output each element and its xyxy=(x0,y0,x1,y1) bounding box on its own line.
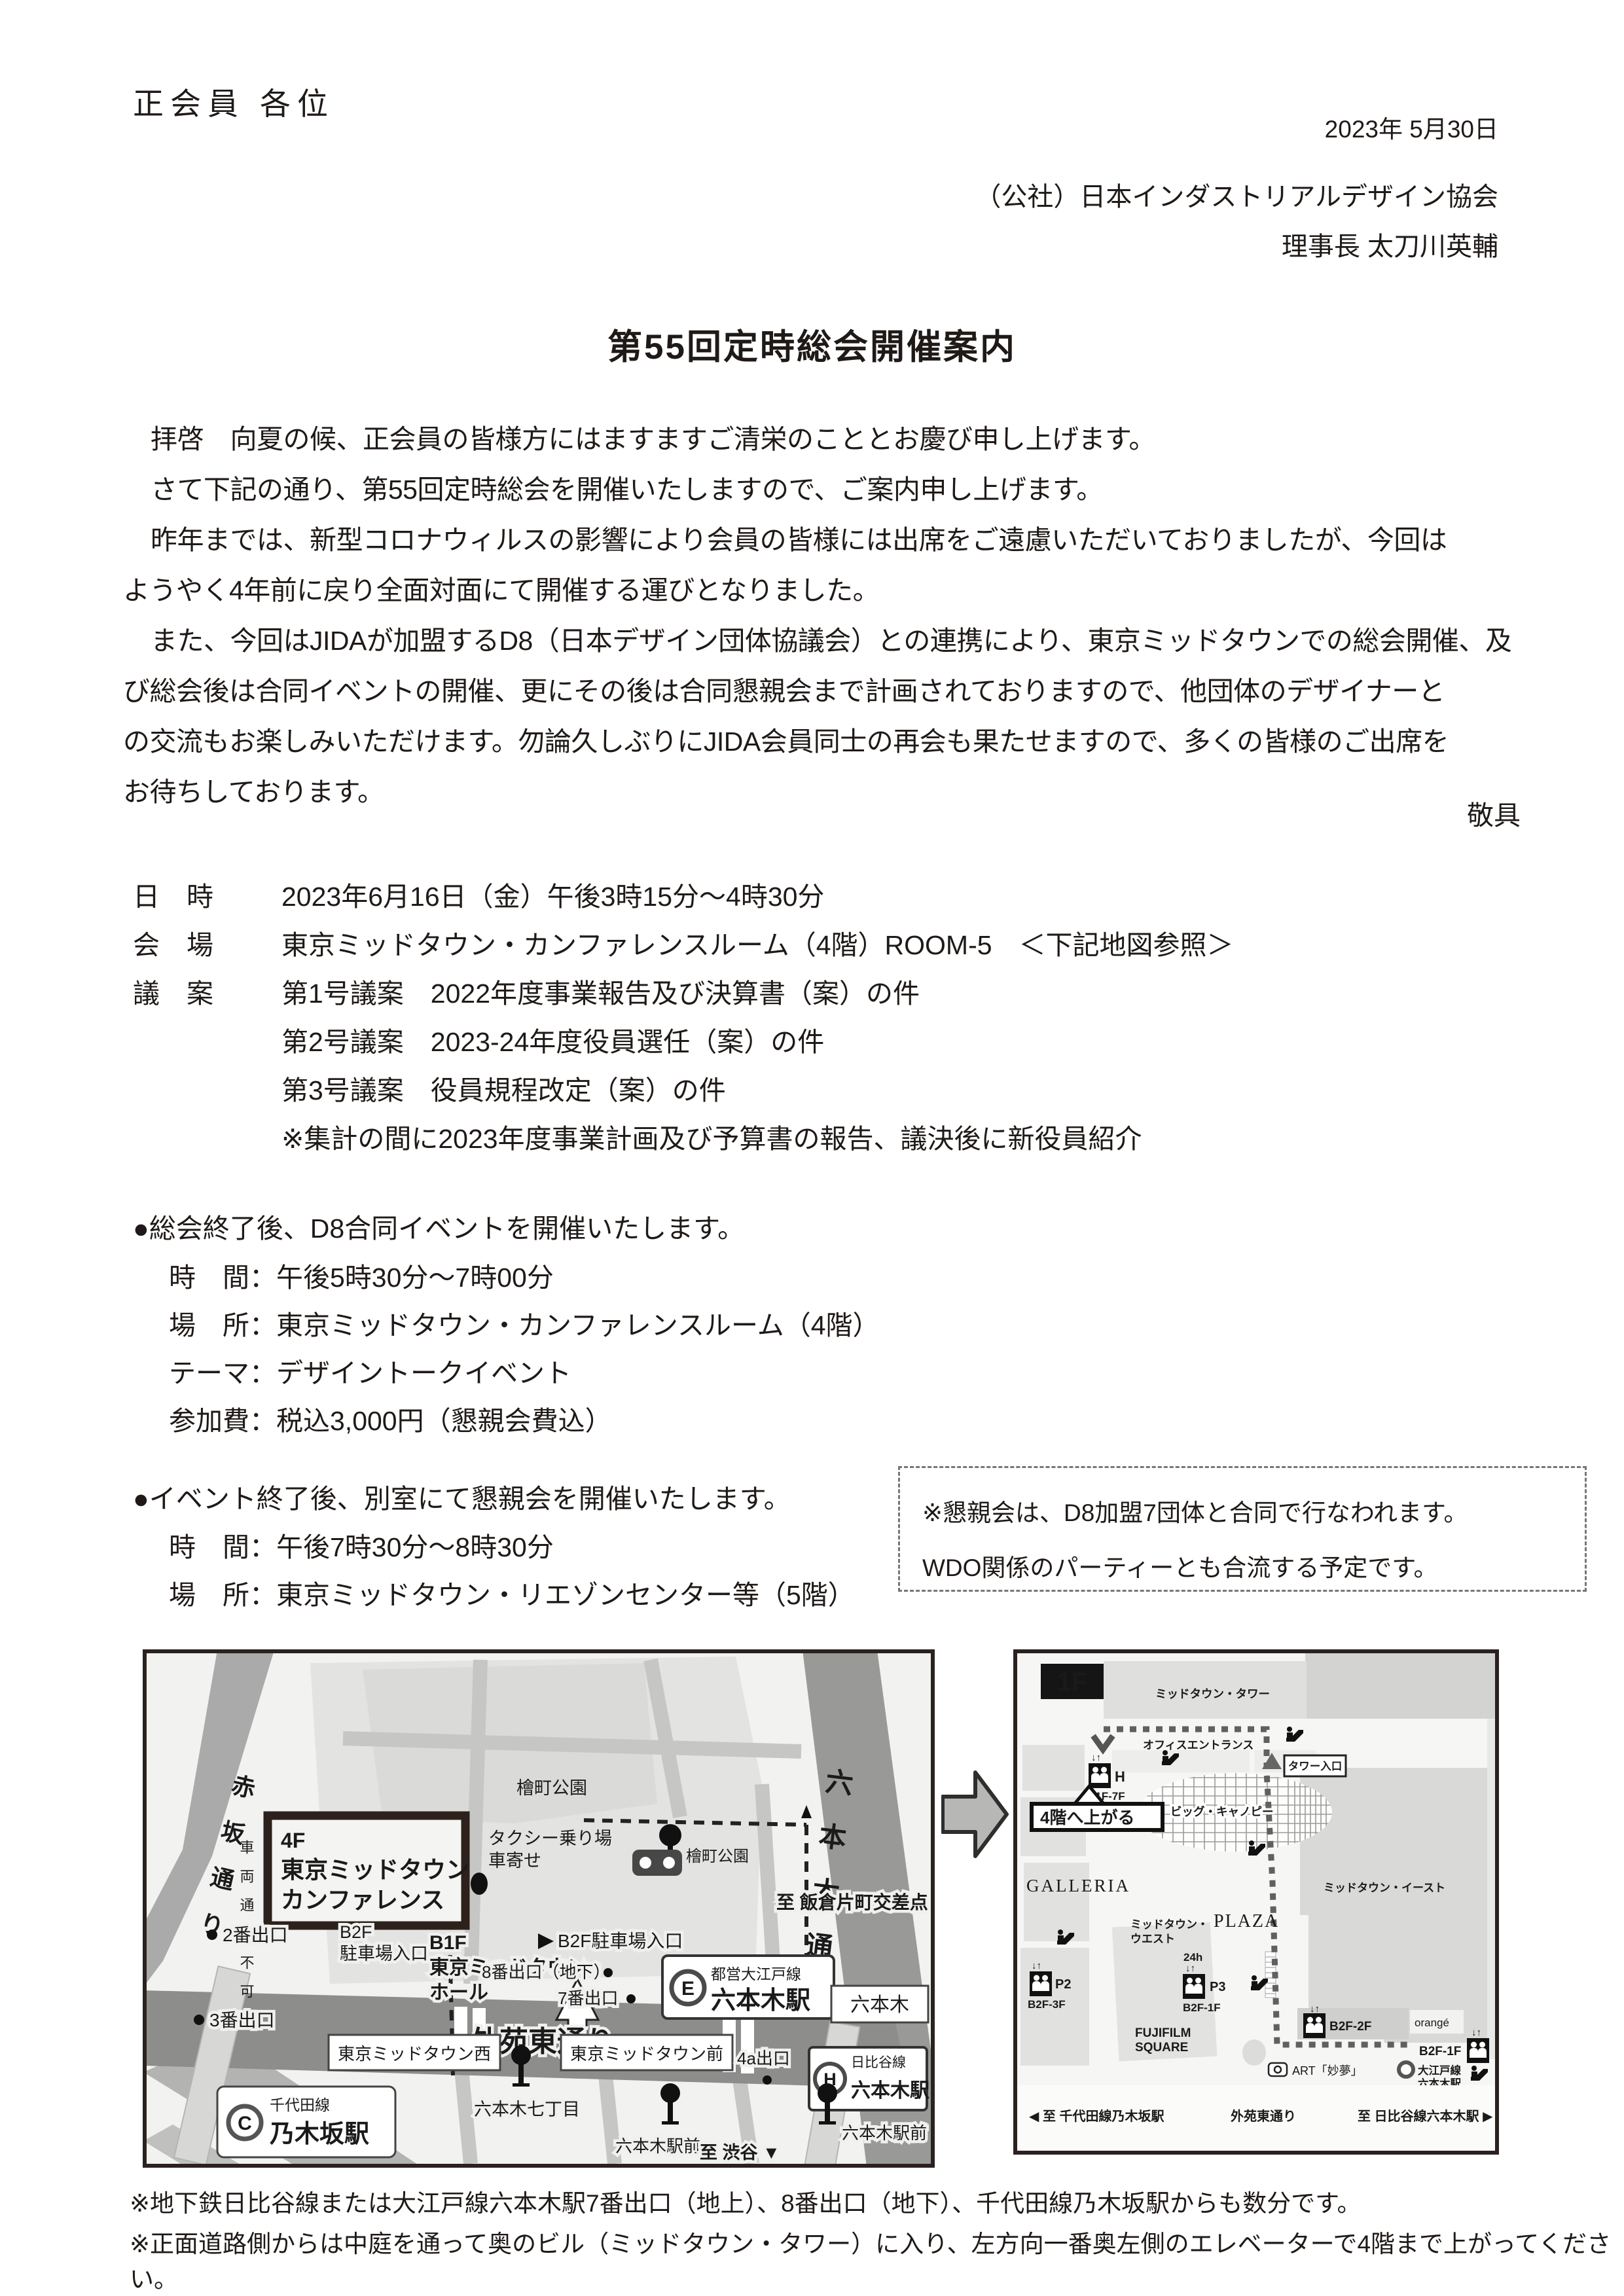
right-edge-strip xyxy=(1487,1719,1495,2059)
exit3-label: 3番出口 xyxy=(209,2010,275,2030)
p2-floors-label: B2F-3F xyxy=(1028,1998,1066,2011)
park-name-label: 檜町公園 xyxy=(516,1778,587,1798)
recipient: 正会員 各位 xyxy=(133,79,334,124)
oedo-line-name: 都営大江戸線 xyxy=(711,1965,801,1982)
street-map-svg: 赤坂通り 六本木通り 外苑東通り 車両通行不可 檜町公園 檜町公園 4F 東京ミ… xyxy=(147,1653,931,2164)
meeting-value: ※集計の間に2023年度事業計画及び予算書の報告、議決後に新役員紹介 xyxy=(281,1115,1142,1163)
updown-arrows: ↓↑ xyxy=(1032,1960,1041,1971)
meeting-label xyxy=(133,1066,281,1115)
meeting-row: ※集計の間に2023年度事業計画及び予算書の報告、議決後に新役員紹介 xyxy=(133,1115,1234,1163)
ekimae-label: 六本木駅前 xyxy=(615,2136,700,2156)
updown-arrows: ↓↑ xyxy=(1185,1963,1195,1974)
notice-line: WDO関係のパーティーとも合流する予定です。 xyxy=(922,1548,1585,1583)
fujifilm-label2: SQUARE xyxy=(1135,2041,1188,2054)
plaza-oval xyxy=(1242,2039,1266,2066)
oedo-line-letter: E xyxy=(681,1978,695,2000)
map-link-arrow xyxy=(941,1767,1009,1865)
fujifilm-label1: FUJIFILM xyxy=(1135,2026,1191,2040)
west-label2: ウエスト xyxy=(1130,1933,1175,1945)
left-parking-label2: 駐車場入口 xyxy=(340,1944,428,1964)
to-roppongi-label: 至 日比谷線六本木駅 ▶ xyxy=(1358,2108,1493,2124)
midtown-front-label: 東京ミッドタウン前 xyxy=(570,2044,723,2064)
left-parking-label1: B2F xyxy=(340,1922,372,1942)
event1-rows: 時 間：午後5時30分～7時00分 場 所：東京ミッドタウン・カンファレンスルー… xyxy=(169,1254,880,1445)
b2f2f-label: B2F-2F xyxy=(1329,2020,1371,2034)
b2f-parking-entrance-label: B2F駐車場入口 xyxy=(558,1931,683,1951)
midtown-west-label: 東京ミッドタウン西 xyxy=(338,2044,491,2064)
block-topright xyxy=(1305,1653,1495,1719)
body-line: また、今回はJIDAが加盟するD8（日本デザイン団体協議会）との連携により、東京… xyxy=(123,616,1537,666)
signer-name: 理事長 太刀川英輔 xyxy=(1282,225,1498,263)
meeting-label: 日 時 xyxy=(133,872,281,921)
event2-heading: ●イベント終了後、別室にて懇親会を開催いたします。 xyxy=(133,1477,791,1516)
event1-heading: ●総会終了後、D8合同イベントを開催いたします。 xyxy=(133,1206,744,1246)
body-line: び総会後は合同イベントの開催、更にその後は合同懇親会まで計画されておりますので、… xyxy=(123,666,1537,717)
orange-label: orangé xyxy=(1415,2017,1449,2029)
exit2-label: 2番出口 xyxy=(223,1925,288,1945)
event1-row: テーマ：デザイントークイベント xyxy=(169,1350,880,1397)
roppongi-label: 六本木 xyxy=(850,1994,909,2016)
east-label: ミッドタウン・イースト xyxy=(1324,1882,1445,1894)
meeting-label xyxy=(133,1115,281,1163)
event2-row: 時 間：午後7時30分～8時30分 xyxy=(169,1524,855,1571)
organization-name: （公社）日本インダストリアルデザイン協会 xyxy=(975,175,1498,213)
floor-badge-label: 1F xyxy=(1057,1668,1088,1696)
exit7-label: 7番出口 xyxy=(558,1988,618,2008)
meeting-row: 日 時2023年6月16日（金）午後3時15分～4時30分 xyxy=(133,872,1234,921)
event1-value: デザイントークイベント xyxy=(276,1358,571,1388)
event2-rows: 時 間：午後7時30分～8時30分 場 所：東京ミッドタウン・リエゾンセンター等… xyxy=(169,1524,855,1619)
notice-line: ※懇親会は、D8加盟7団体と合同で行なわれます。 xyxy=(922,1493,1585,1528)
park-poi-label: 檜町公園 xyxy=(686,1848,749,1865)
conference-name-label1: 東京ミッドタウン xyxy=(281,1856,469,1883)
street-map: 赤坂通り 六本木通り 外苑東通り 車両通行不可 檜町公園 檜町公園 4F 東京ミ… xyxy=(143,1649,935,2168)
notice-box: ※懇親会は、D8加盟7団体と合同で行なわれます。 WDO関係のパーティーとも合流… xyxy=(898,1466,1587,1592)
event1-label: 参加費： xyxy=(169,1406,276,1436)
roppongi-signal-box: 六本木 xyxy=(831,1986,928,2022)
elevator-icon xyxy=(1467,2038,1489,2063)
tower-gate-label: タワー入口 xyxy=(1288,1760,1343,1772)
midtown-front-signal-box: 東京ミッドタウン前 xyxy=(561,2035,732,2070)
meeting-label: 議 案 xyxy=(133,969,281,1018)
footnote-line2: ※正面道路側からは中庭を通って奥のビル（ミッドタウン・タワー）に入り、左方向一番… xyxy=(130,2224,1624,2295)
meeting-value: 2023年6月16日（金）午後3時15分～4時30分 xyxy=(281,872,824,921)
conference-floor-label: 4F xyxy=(281,1829,305,1852)
conference-name-label2: カンファレンス xyxy=(281,1886,444,1913)
plaza-label: PLAZA xyxy=(1214,1911,1279,1931)
venue-location-dot xyxy=(471,1873,488,1895)
chiyoda-line-letter: C xyxy=(238,2113,252,2134)
to-shibuya-label: 至 渋谷 ▼ xyxy=(700,2143,780,2162)
to-iigura-label: 至 飯倉片町交差点 ▶ xyxy=(776,1892,931,1912)
meeting-row: 第3号議案 役員規程改定（案）の件 xyxy=(133,1066,1234,1115)
floor-plan-svg: 1F ミッドタウン・タワー オフィスエントランス タワー入口 ↓↑ H B1F-… xyxy=(1017,1653,1495,2151)
event2-value: 午後7時30分～8時30分 xyxy=(276,1532,554,1562)
meeting-value: 第1号議案 2022年度事業報告及び決算書（案）の件 xyxy=(281,969,920,1018)
art-label: ART「妙夢」 xyxy=(1292,2064,1363,2077)
elevator-icon xyxy=(1303,2013,1326,2038)
exit7-dot xyxy=(626,1994,636,2003)
meeting-row: 会 場東京ミッドタウン・カンファレンスルーム（4階）ROOM-5 ＜下記地図参照… xyxy=(133,921,1234,969)
gaien-label: 外苑東通り xyxy=(1231,2108,1296,2124)
p2-label: P2 xyxy=(1055,1977,1071,1992)
letter-body: 拝啓 向夏の候、正会員の皆様方にはますますご清栄のこととお慶び申し上げます。 さ… xyxy=(123,414,1537,817)
p3-label: P3 xyxy=(1210,1980,1225,1994)
closing-word: 敬具 xyxy=(1467,793,1521,833)
tower-label: ミッドタウン・タワー xyxy=(1155,1687,1270,1700)
exit4a-dot xyxy=(763,2075,772,2085)
office-entrance-label: オフィスエントランス xyxy=(1143,1739,1254,1751)
tower-gate-box: タワー入口 xyxy=(1284,1755,1346,1776)
to-nogizaka-label: ◀ 至 千代田線乃木坂駅 xyxy=(1029,2108,1164,2124)
updown-arrows: ↓↑ xyxy=(1091,1752,1101,1763)
event1-value: 東京ミッドタウン・カンファレンスルーム（4階） xyxy=(276,1310,880,1340)
chiyoda-station-box: C 千代田線 乃木坂駅 xyxy=(217,2087,395,2157)
event2-label: 時 間： xyxy=(169,1532,276,1562)
event2-row: 場 所：東京ミッドタウン・リエゾンセンター等（5階） xyxy=(169,1571,855,1619)
event1-label: テーマ： xyxy=(169,1358,276,1388)
meeting-row: 議 案第1号議案 2022年度事業報告及び決算書（案）の件 xyxy=(133,969,1234,1018)
body-line: 昨年までは、新型コロナウィルスの影響により会員の皆様には出席をご遠慮いただいてお… xyxy=(123,515,1537,565)
p3-floors-label: B2F-1F xyxy=(1183,2001,1221,2014)
office-entrance-block xyxy=(1112,1750,1250,1772)
exit2-dot xyxy=(207,1929,217,1940)
car-icon xyxy=(632,1850,682,1876)
letter-page: 正会員 各位 2023年 5月30日 （公社）日本インダストリアルデザイン協会 … xyxy=(0,0,1624,2296)
body-line: 拝啓 向夏の候、正会員の皆様方にはますますご清栄のこととお慶び申し上げます。 xyxy=(123,414,1537,465)
event1-row: 時 間：午後5時30分～7時00分 xyxy=(169,1254,880,1302)
page-title: 第55回定時総会開催案内 xyxy=(0,319,1624,369)
body-line: さて下記の通り、第55回定時総会を開催いたしますので、ご案内申し上げます。 xyxy=(123,465,1537,515)
exit3-dot xyxy=(194,2015,204,2025)
meeting-label xyxy=(133,1018,281,1066)
driveway-label: 車寄せ xyxy=(488,1851,541,1871)
hall-floor-label: B1F xyxy=(429,1932,467,1954)
meeting-value: 第2号議案 2023-24年度役員選任（案）の件 xyxy=(281,1018,824,1066)
event1-value: 税込3,000円（懇親会費込） xyxy=(276,1406,612,1436)
west-label1: ミッドタウン・ xyxy=(1130,1918,1208,1931)
event1-value: 午後5時30分～7時00分 xyxy=(276,1263,554,1293)
body-line: ようやく4年前に戻り全面対面にて開催する運びとなりました。 xyxy=(123,565,1537,616)
event2-label: 場 所： xyxy=(169,1580,276,1610)
go-4f-box: 4階へ上がる xyxy=(1032,1804,1163,1830)
canopy-label: ビッグ・キャノピー xyxy=(1170,1805,1274,1818)
updown-arrows: ↓↑ xyxy=(1310,2003,1320,2015)
elevator-icon xyxy=(1089,1763,1111,1788)
footnote-line1: ※地下鉄日比谷線または大江戸線六本木駅7番出口（地上）、8番出口（地下）、千代田… xyxy=(130,2183,1361,2219)
meeting-label: 会 場 xyxy=(133,921,281,969)
event1-row: 参加費：税込3,000円（懇親会費込） xyxy=(169,1397,880,1445)
hibiya-line-name: 日比谷線 xyxy=(851,2055,906,2070)
elevator-icon xyxy=(1183,1974,1205,1999)
oedo-line-icon xyxy=(1399,2062,1413,2077)
exit4a-label: 4a出口 xyxy=(737,2049,790,2068)
oedo-line-label: 大江戸線 xyxy=(1418,2064,1462,2077)
nogizaka-station-name: 乃木坂駅 xyxy=(270,2121,369,2148)
galleria-label: GALLERIA xyxy=(1026,1876,1130,1895)
event1-label: 時 間： xyxy=(169,1263,276,1293)
updown-arrows: ↓↑ xyxy=(1471,2027,1481,2038)
hibiya-station-name: 六本木駅 xyxy=(851,2080,929,2102)
event2-value: 東京ミッドタウン・リエゾンセンター等（5階） xyxy=(276,1580,855,1610)
body-line: お待ちしております。 xyxy=(123,767,1537,817)
event1-row: 場 所：東京ミッドタウン・カンファレンスルーム（4階） xyxy=(169,1302,880,1350)
floor-plan-map: 1F ミッドタウン・タワー オフィスエントランス タワー入口 ↓↑ H B1F-… xyxy=(1013,1649,1499,2155)
meeting-value: 第3号議案 役員規程改定（案）の件 xyxy=(281,1066,726,1115)
b2f1f-label: B2F-1F xyxy=(1419,2045,1461,2058)
right-arrow-icon xyxy=(943,1772,1007,1856)
elevator-h-label: H xyxy=(1115,1768,1125,1785)
go-4f-label: 4階へ上がる xyxy=(1040,1808,1134,1827)
ekimae-label: 六本木駅前 xyxy=(842,2123,927,2143)
exit8-label: 8番出口（地下） xyxy=(482,1962,610,1982)
meeting-value: 東京ミッドタウン・カンファレンスルーム（4階）ROOM-5 ＜下記地図参照＞ xyxy=(281,921,1234,969)
oedo-station-box: E 都営大江戸線 六本木駅 xyxy=(662,1956,834,2018)
chiyoda-line-name: 千代田線 xyxy=(270,2096,330,2113)
elevator-icon xyxy=(1030,1971,1052,1996)
issue-date: 2023年 5月30日 xyxy=(1325,109,1498,145)
meeting-details: 日 時2023年6月16日（金）午後3時15分～4時30分 会 場東京ミッドタウ… xyxy=(133,872,1234,1163)
midtown-west-signal-box: 東京ミッドタウン西 xyxy=(329,2035,500,2070)
body-line: の交流もお楽しみいただけます。勿論久しぶりにJIDA会員同士の再会も果たせますの… xyxy=(123,717,1537,767)
taxi-stand-label: タクシー乗り場 xyxy=(488,1829,612,1848)
camera-icon xyxy=(1269,2063,1287,2076)
hall-name-label2: ホール xyxy=(429,1982,488,2003)
event1-label: 場 所： xyxy=(169,1310,276,1340)
24h-label: 24h xyxy=(1183,1951,1202,1964)
oedo-station-name: 六本木駅 xyxy=(711,1987,810,2015)
exit8-dot xyxy=(604,1968,613,1977)
meeting-row: 第2号議案 2023-24年度役員選任（案）の件 xyxy=(133,1018,1234,1066)
nanachome-label: 六本木七丁目 xyxy=(474,2100,580,2119)
